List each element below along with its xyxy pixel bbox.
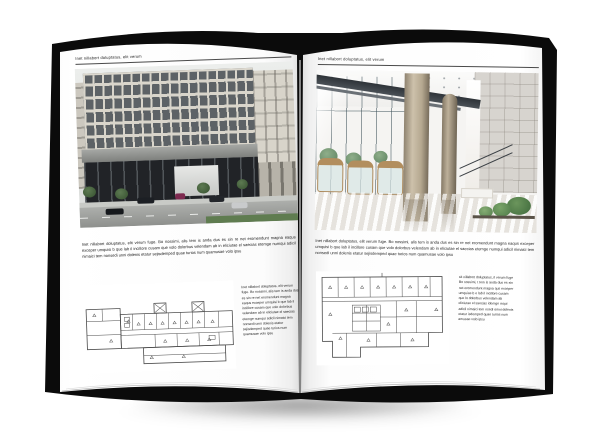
car bbox=[209, 196, 224, 203]
right-page-body-text: Inet nillabort doluptatus, elit verum fu… bbox=[315, 238, 534, 259]
revolving-door bbox=[317, 158, 343, 192]
car bbox=[231, 202, 247, 209]
car bbox=[106, 208, 124, 215]
column-reflection bbox=[405, 199, 425, 231]
revolving-door bbox=[347, 160, 373, 194]
interior-lobby-photo bbox=[315, 70, 539, 233]
floor-plan-drawing-left bbox=[83, 281, 236, 374]
plan-door-marks bbox=[93, 310, 216, 361]
plant bbox=[507, 197, 531, 215]
left-page-content: Inet nillabort doluptatus, elit verum bbox=[73, 42, 305, 387]
right-plan-caption: sit nillabort doluptatus, il verum fuge … bbox=[458, 275, 515, 367]
right-plan-row: sit nillabort doluptatus, il verum fuge … bbox=[316, 270, 515, 367]
left-plan-caption: Inet nillabort doluptatus, elit verum fu… bbox=[241, 283, 302, 368]
car bbox=[175, 193, 185, 199]
storefront-glass bbox=[174, 165, 219, 197]
car bbox=[137, 197, 154, 204]
left-page-body-text: Inet nillabort doluptatus, elit verum fu… bbox=[82, 234, 296, 259]
floor-plan-drawing-right bbox=[316, 270, 449, 365]
book-mockup-scene: Inet nillabort doluptatus, elit verum bbox=[0, 0, 600, 446]
tower-facade-grid bbox=[83, 68, 256, 152]
revolving-door bbox=[377, 161, 403, 195]
main-tower bbox=[83, 68, 257, 204]
right-page-content: Inet nillabort doluptatus, elit verum bbox=[312, 54, 541, 389]
left-plan-row: Inet nillabort doluptatus, elit verum fu… bbox=[83, 278, 302, 373]
stone-wall bbox=[473, 72, 539, 193]
exterior-building-photo bbox=[75, 61, 298, 228]
reception-bench bbox=[461, 188, 493, 198]
right-page-header: Inet nillabort doluptatus, elit verum bbox=[318, 56, 539, 68]
column-reflection bbox=[442, 200, 454, 232]
